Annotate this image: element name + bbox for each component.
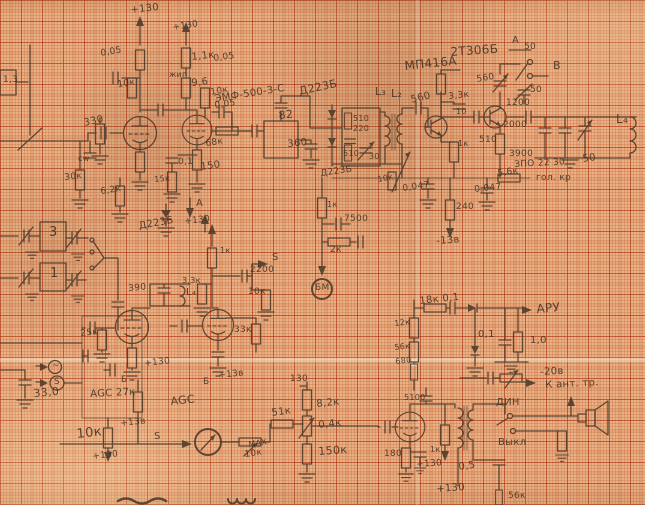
crystal-filter-switch <box>0 222 124 330</box>
agc-detector <box>410 300 537 390</box>
bm-branch <box>312 178 363 299</box>
bm-block-icon <box>312 279 332 299</box>
circuit-drawing <box>0 0 645 505</box>
vacuum-tube-icon <box>202 309 233 340</box>
coil-icon <box>180 286 185 306</box>
s-meter-circuit <box>60 382 378 482</box>
tank-circuit <box>506 111 636 168</box>
s-meter-icon <box>195 429 221 455</box>
if-stage-1 <box>72 16 186 222</box>
transformer-icon <box>458 408 463 448</box>
transistor-icon <box>484 106 506 128</box>
speaker-icon <box>586 401 608 435</box>
output-stage <box>378 388 608 505</box>
connectors <box>0 361 82 409</box>
jack-circle-icon <box>50 376 64 390</box>
vacuum-tube-icon <box>116 311 149 344</box>
transistor-icon <box>425 116 447 138</box>
vacuum-tube-icon <box>124 117 157 150</box>
bfo-stage <box>0 284 190 462</box>
coil-icon <box>610 117 636 158</box>
vacuum-tube-icon <box>182 115 212 145</box>
vacuum-tube-icon <box>395 412 425 442</box>
input-section <box>0 45 88 150</box>
emf-filter <box>216 96 332 168</box>
schematic-photo: +130+1300,051,1к0,05жип9,610к10к0,053306… <box>0 0 645 505</box>
mid-if-stage <box>170 224 274 376</box>
mixer-transistor-stage <box>420 70 465 208</box>
oscillator-transistor-stage <box>441 50 548 238</box>
jack-circle-icon <box>49 361 62 374</box>
detector-diodes <box>328 105 342 166</box>
paper-marks <box>118 499 255 504</box>
